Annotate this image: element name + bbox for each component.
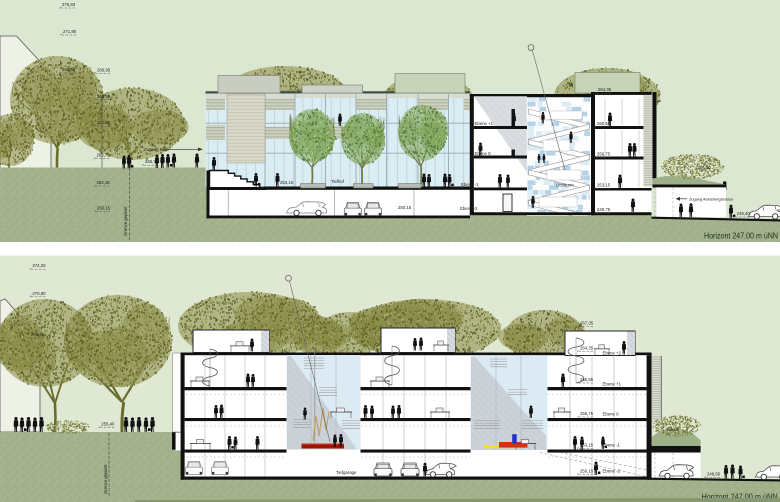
svg-text:266,95: 266,95 bbox=[97, 67, 111, 72]
svg-text:Tiefhof: Tiefhof bbox=[331, 179, 345, 184]
svg-text:270,90: 270,90 bbox=[32, 291, 46, 296]
svg-text:250,15: 250,15 bbox=[398, 205, 412, 210]
svg-text:253,15: 253,15 bbox=[97, 180, 111, 185]
svg-text:Zugang Park: Zugang Park bbox=[144, 147, 169, 152]
svg-text:265,90: 265,90 bbox=[62, 67, 76, 72]
svg-text:Ebene +1: Ebene +1 bbox=[603, 381, 622, 386]
svg-text:Ebene -1: Ebene -1 bbox=[603, 443, 621, 448]
svg-text:275,93: 275,93 bbox=[62, 2, 76, 7]
svg-text:253,15: 253,15 bbox=[280, 180, 294, 185]
svg-text:Ebene 0: Ebene 0 bbox=[475, 151, 492, 156]
svg-text:Ebene +1: Ebene +1 bbox=[475, 121, 494, 126]
svg-text:Horizont 247.00 m üNN: Horizont 247.00 m üNN bbox=[704, 230, 778, 240]
svg-text:271,80: 271,80 bbox=[63, 29, 77, 34]
svg-text:253,15: 253,15 bbox=[580, 442, 594, 447]
svg-text:266,90: 266,90 bbox=[31, 332, 45, 337]
svg-text:249,75: 249,75 bbox=[597, 207, 611, 212]
svg-text:Grenze geplant: Grenze geplant bbox=[123, 206, 128, 236]
svg-text:260,55: 260,55 bbox=[580, 377, 594, 382]
svg-text:255,40: 255,40 bbox=[101, 422, 115, 427]
svg-text:267,35: 267,35 bbox=[580, 321, 594, 326]
svg-text:Tiefgarage: Tiefgarage bbox=[336, 470, 357, 475]
svg-text:Ebene +2: Ebene +2 bbox=[603, 350, 622, 355]
svg-text:249,40: 249,40 bbox=[737, 211, 751, 216]
svg-text:Ebene -1: Ebene -1 bbox=[461, 182, 479, 187]
svg-text:249,50: 249,50 bbox=[707, 472, 721, 477]
svg-text:250,15: 250,15 bbox=[580, 468, 594, 473]
svg-text:260,55: 260,55 bbox=[597, 121, 611, 126]
svg-text:263,95: 263,95 bbox=[97, 94, 111, 99]
svg-text:Zugang Abelsbergstrasse: Zugang Abelsbergstrasse bbox=[689, 196, 733, 201]
svg-text:Ebene 0: Ebene 0 bbox=[603, 411, 620, 416]
svg-text:253,15: 253,15 bbox=[597, 183, 611, 188]
svg-text:Ebene -2: Ebene -2 bbox=[603, 469, 621, 474]
svg-text:250,15: 250,15 bbox=[97, 205, 111, 210]
svg-text:256,75: 256,75 bbox=[580, 411, 594, 416]
svg-text:264,35: 264,35 bbox=[580, 345, 594, 350]
svg-text:256,75: 256,75 bbox=[597, 151, 611, 156]
svg-text:264,35: 264,35 bbox=[598, 87, 612, 92]
svg-text:Ebene -2: Ebene -2 bbox=[460, 206, 478, 211]
svg-text:274,20: 274,20 bbox=[32, 263, 46, 268]
svg-text:255,70: 255,70 bbox=[145, 159, 159, 164]
svg-text:260,95: 260,95 bbox=[97, 120, 111, 125]
svg-text:Grenze geplant: Grenze geplant bbox=[103, 464, 108, 494]
svg-text:256,00: 256,00 bbox=[698, 165, 712, 170]
svg-text:256,00: 256,00 bbox=[666, 427, 680, 432]
svg-text:256,75: 256,75 bbox=[97, 153, 111, 158]
svg-text:Lichtturm: Lichtturm bbox=[556, 182, 574, 187]
